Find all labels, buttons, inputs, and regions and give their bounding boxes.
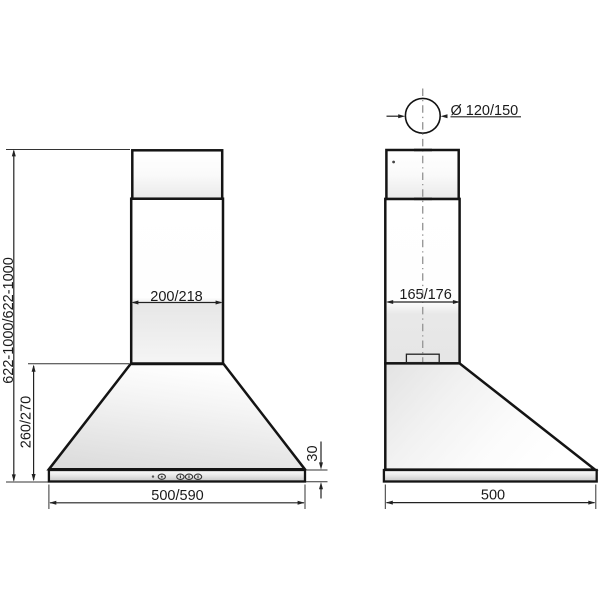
svg-text:165/176: 165/176 xyxy=(399,287,451,303)
svg-text:Ø 120/150: Ø 120/150 xyxy=(451,103,519,119)
svg-text:260/270: 260/270 xyxy=(19,396,35,448)
svg-text:500: 500 xyxy=(481,488,505,504)
svg-text:30: 30 xyxy=(305,445,321,461)
svg-text:500/590: 500/590 xyxy=(151,488,203,504)
svg-text:622-1000/622-1000: 622-1000/622-1000 xyxy=(1,257,17,384)
svg-text:200/218: 200/218 xyxy=(150,289,202,305)
